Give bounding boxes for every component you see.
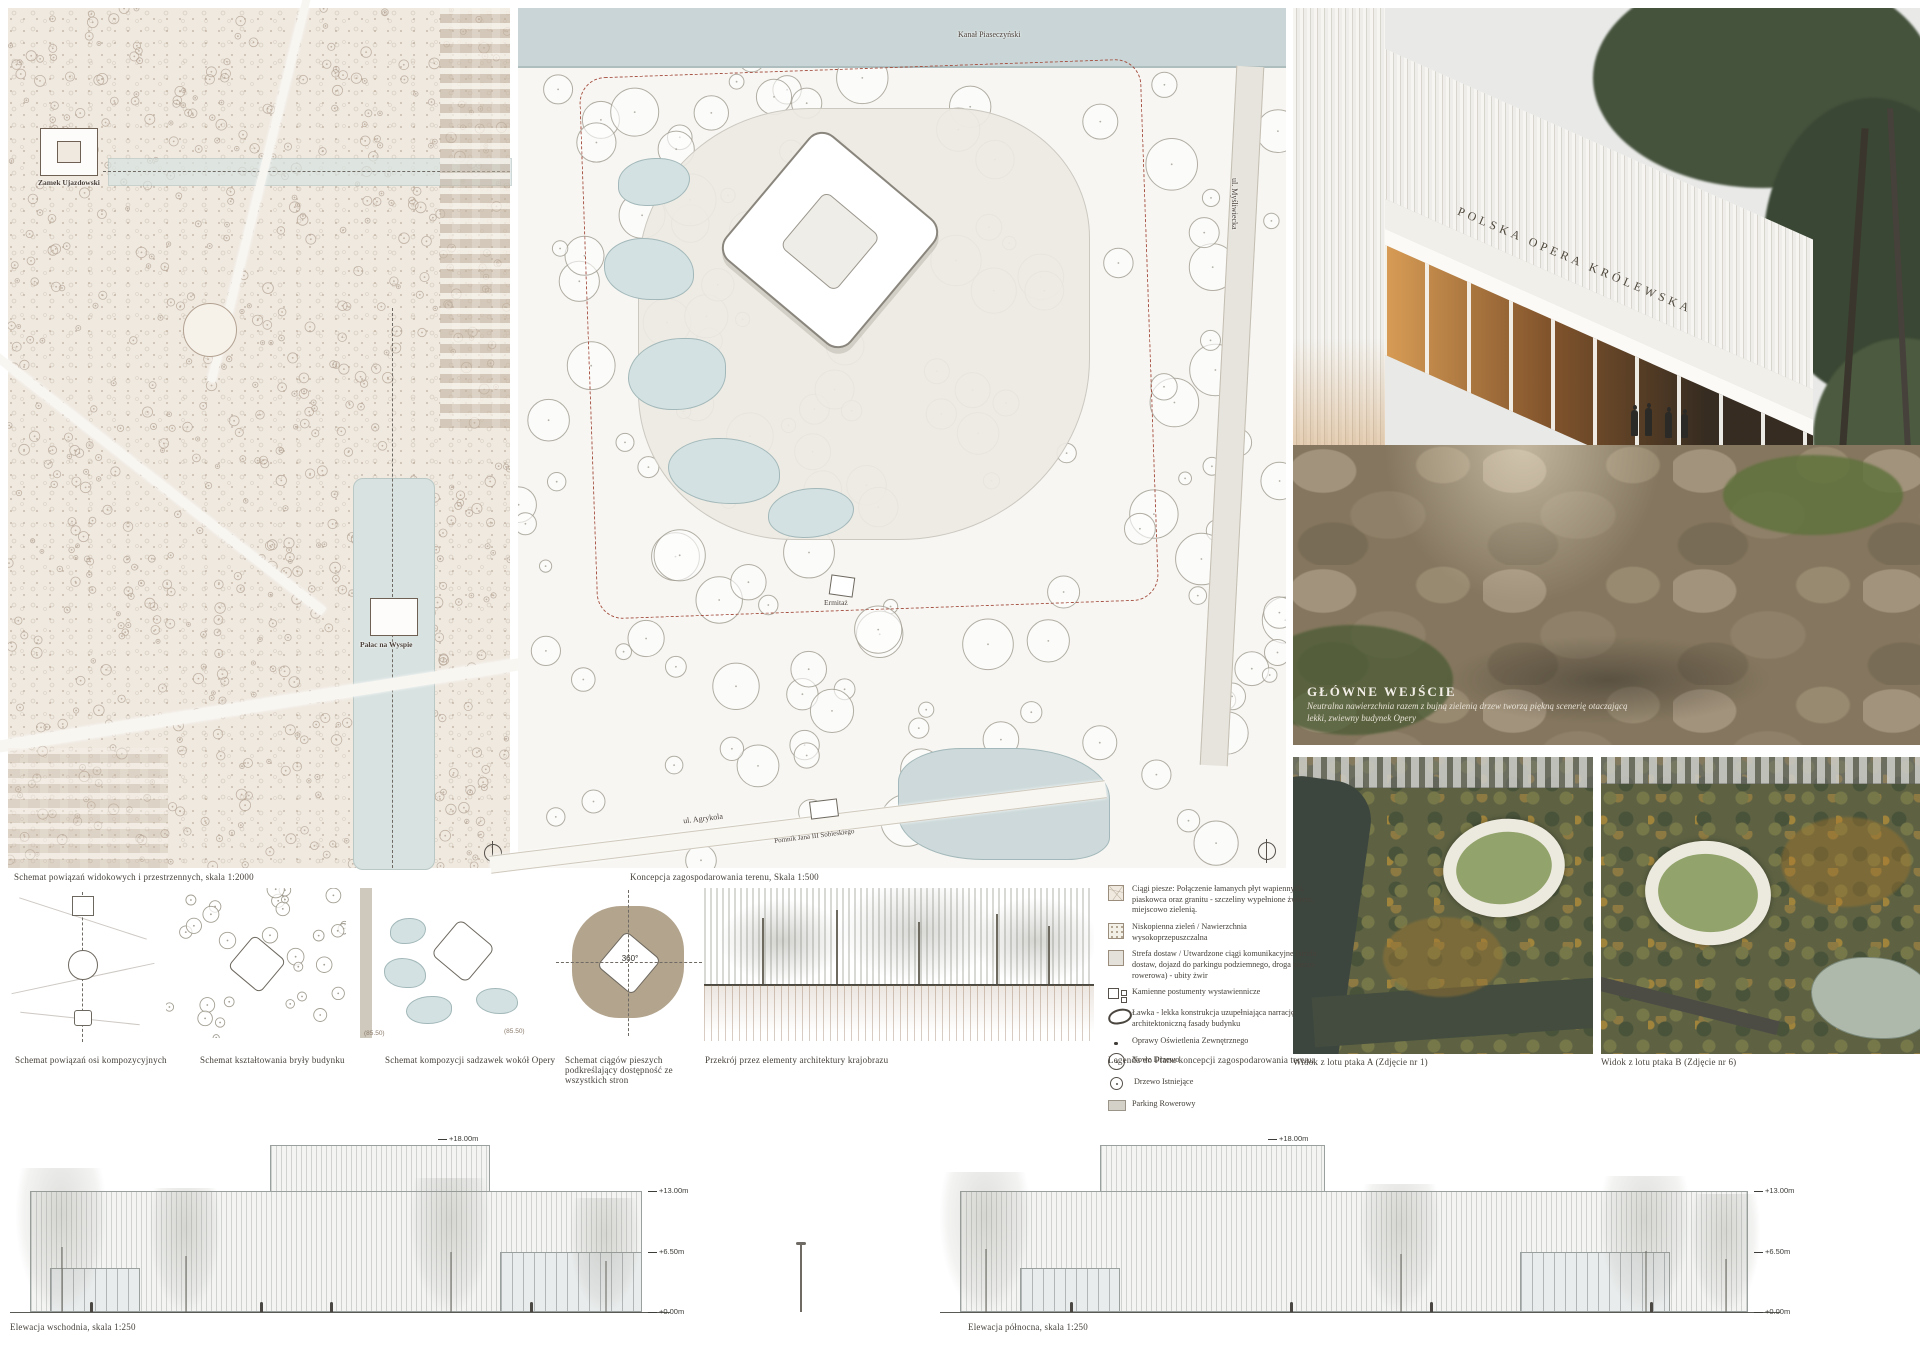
opera-building-aerial [1437, 811, 1571, 925]
legend-text: Oprawy Oświetlenia Zewnętrznego [1132, 1036, 1248, 1047]
aerial-b-caption: Widok z lotu ptaka B (Zdjęcie nr 6) [1601, 1057, 1736, 1067]
scale-figure [330, 1302, 333, 1312]
autumn-patch [1383, 917, 1503, 997]
design-boundary [579, 58, 1160, 619]
opera-building-aerial [1640, 835, 1776, 952]
aerial-photo-b [1601, 757, 1920, 1054]
scale-figure [530, 1302, 533, 1312]
pond-mini [476, 988, 518, 1014]
level-marker: +13.00m [648, 1186, 688, 1195]
section-trunk [1048, 926, 1050, 984]
scale-figure [1070, 1302, 1073, 1312]
legend-text: Strefa dostaw / Utwardzone ciągi komunik… [1132, 949, 1322, 981]
autumn-patch [1781, 817, 1911, 907]
stone-paving-swatch-icon [1108, 885, 1124, 901]
legend-text: Ciągi piesze: Połączenie łamanych płyt w… [1132, 884, 1322, 916]
diagram-access-caption: Schemat ciągów pieszych podkreślający do… [565, 1055, 705, 1085]
level-marker: +0.00m [648, 1307, 684, 1316]
section-trunk [996, 914, 998, 984]
legend-text: Ławka - lekka konstrukcja uzupełniająca … [1132, 1008, 1322, 1029]
hermitage-footprint [829, 574, 856, 597]
pond-mini [406, 996, 452, 1024]
person-silhouette [1631, 410, 1638, 436]
exterior-light-icon [1114, 1042, 1118, 1046]
legend-item: Drzewo Istniejące [1108, 1076, 1322, 1090]
palace-on-isle-footprint [370, 598, 418, 636]
legend-item: Oprawy Oświetlenia Zewnętrznego [1108, 1036, 1322, 1047]
section-caption: Przekrój przez elementy architektury kra… [705, 1055, 888, 1065]
ground-line [940, 1312, 1780, 1313]
aerial-photo-a [1293, 757, 1593, 1054]
person-silhouette [1645, 408, 1652, 436]
legend-item: Strefa dostaw / Utwardzone ciągi komunik… [1108, 949, 1322, 981]
city-skyline [1601, 757, 1920, 784]
diagram-massing-caption: Schemat kształtowania bryły budynku [200, 1055, 345, 1065]
monument-footprint [809, 798, 839, 819]
legend-item: Parking Rowerowy [1108, 1096, 1322, 1111]
legend-text: Kamienne postumenty wystawiennicze [1132, 987, 1260, 998]
pond-aerial [1811, 957, 1920, 1039]
palace-mini [74, 1010, 92, 1026]
access-dash-v [628, 890, 629, 1036]
greenery-swatch-icon [1108, 923, 1124, 939]
sketch-tree [410, 1178, 490, 1312]
legend-text: Drzewo Istniejące [1134, 1076, 1193, 1088]
legend-item: Niskopienna zieleń / Nawierzchnia wysoko… [1108, 922, 1322, 943]
grass-patch-right [1723, 455, 1903, 535]
sketch-tree [940, 1172, 1030, 1312]
palace-label: Pałac na Wyspie [360, 640, 413, 649]
level-marker: +6.50m [648, 1247, 684, 1256]
concept-plan: Kanał Piaseczyński ul. Myśliwiecka Ermit… [518, 8, 1286, 868]
diagram-massing [166, 888, 346, 1048]
castle-mini [72, 896, 94, 916]
section-trunk [918, 922, 920, 984]
diagram-access: 360° [556, 888, 702, 1048]
east-elevation-caption: Elewacja wschodnia, skala 1:250 [10, 1322, 136, 1332]
site-plan-caption: Schemat powiązań widokowych i przestrzen… [14, 872, 254, 882]
canal-label: Kanał Piaseczyński [958, 30, 1020, 39]
city-blocks-south [8, 748, 168, 868]
bike-parking-swatch-icon [1108, 1100, 1126, 1111]
plan-legend: Ciągi piesze: Połączenie łamanych płyt w… [1108, 884, 1322, 1117]
level-marker: +13.00m [1754, 1186, 1794, 1195]
east-elevation: +18.00m +13.00m +6.50m +0.00m [30, 1128, 646, 1314]
person-silhouette [1665, 412, 1672, 438]
sketch-tree [1360, 1184, 1440, 1312]
bench-icon [1107, 1007, 1133, 1026]
canal-band [518, 8, 1286, 68]
section-trunk [836, 910, 838, 984]
level-marker: +6.50m [1754, 1247, 1790, 1256]
scale-figure [1290, 1302, 1293, 1312]
scale-figure [260, 1302, 263, 1312]
street-lamp-icon [800, 1242, 802, 1312]
render-caption-line2: lekki, zwiewny budynek Opery [1307, 712, 1627, 724]
building-mini [431, 919, 496, 984]
existing-tree-icon [1110, 1077, 1123, 1090]
landscape-section [704, 888, 1094, 1048]
road-aerial [1601, 973, 1780, 1035]
axis-node [68, 950, 98, 980]
gravel-swatch-icon [1108, 950, 1124, 966]
ground-line [10, 1312, 670, 1313]
diagram-ponds-caption: Schemat kompozycji sadzawek wokół Opery [385, 1055, 555, 1065]
access-dash-h [556, 962, 702, 963]
legend-item: Ciągi piesze: Połączenie łamanych płyt w… [1108, 884, 1322, 916]
scale-figure [1650, 1302, 1653, 1312]
spot-level: (85.50) [504, 1028, 525, 1035]
sketch-tree [570, 1198, 640, 1312]
stone-pedestals-icon [1108, 988, 1130, 1002]
site-plan-map: Zamek Ujazdowski Pałac na Wyspie [8, 8, 510, 868]
diagram-axes-caption: Schemat powiązań osi kompozycyjnych [15, 1055, 167, 1065]
level-marker: +18.00m [438, 1134, 478, 1143]
spot-level: (85.50) [364, 1030, 385, 1037]
sketch-tree [1600, 1176, 1690, 1312]
legend-caption: Legenda do Planu koncepcji zagospodarowa… [1108, 1055, 1314, 1065]
city-blocks [440, 8, 510, 428]
section-roots [704, 985, 1094, 1041]
main-entrance-render: POLSKA OPERA KRÓLEWSKA GŁÓWNE WEJŚCIE Ne… [1293, 8, 1920, 745]
person-silhouette [1681, 414, 1688, 438]
concept-plan-caption: Koncepcja zagospodarowania terenu, Skala… [630, 872, 819, 882]
render-caption-line1: Neutralna nawierzchnia razem z bujną zie… [1307, 700, 1627, 712]
wet-reflection [1383, 445, 1663, 605]
street-right-label: ul. Myśliwiecka [1230, 178, 1239, 230]
level-marker: +18.00m [1268, 1134, 1308, 1143]
north-elevation: +18.00m +13.00m +6.50m +0.00m [960, 1128, 1752, 1314]
sketch-tree [16, 1168, 106, 1312]
legend-text: Niskopienna zieleń / Nawierzchnia wysoko… [1132, 922, 1322, 943]
castle-courtyard [57, 141, 81, 163]
view-axis-vertical [392, 308, 393, 868]
hermitage-label: Ermitaż [824, 598, 848, 607]
castle-label: Zamek Ujazdowski [38, 178, 100, 187]
legend-text: Parking Rowerowy [1132, 1096, 1195, 1110]
diagram-axes [10, 888, 156, 1048]
road-band-mini [360, 888, 372, 1038]
scale-figure [90, 1302, 93, 1312]
ujazdowski-castle-footprint [40, 128, 98, 176]
legend-item: Ławka - lekka konstrukcja uzupełniająca … [1108, 1008, 1322, 1029]
section-trunk [762, 918, 764, 984]
pond-mini [390, 918, 426, 944]
sketch-tree [150, 1188, 220, 1312]
render-caption: GŁÓWNE WEJŚCIE Neutralna nawierzchnia ra… [1307, 684, 1627, 724]
scale-figure [1430, 1302, 1433, 1312]
legend-item: Kamienne postumenty wystawiennicze [1108, 987, 1322, 1002]
render-caption-title: GŁÓWNE WEJŚCIE [1307, 684, 1627, 700]
plan-north-arrow-icon [1258, 842, 1276, 860]
level-marker: +0.00m [1754, 1307, 1790, 1316]
pond-mini [384, 958, 426, 988]
round-plaza [183, 303, 237, 357]
competition-board: Zamek Ujazdowski Pałac na Wyspie Schemat… [0, 0, 1920, 1350]
north-elevation-caption: Elewacja północna, skala 1:250 [968, 1322, 1088, 1332]
sketch-tree [1690, 1194, 1760, 1312]
diagram-ponds: (85.50) (85.50) [356, 888, 542, 1048]
